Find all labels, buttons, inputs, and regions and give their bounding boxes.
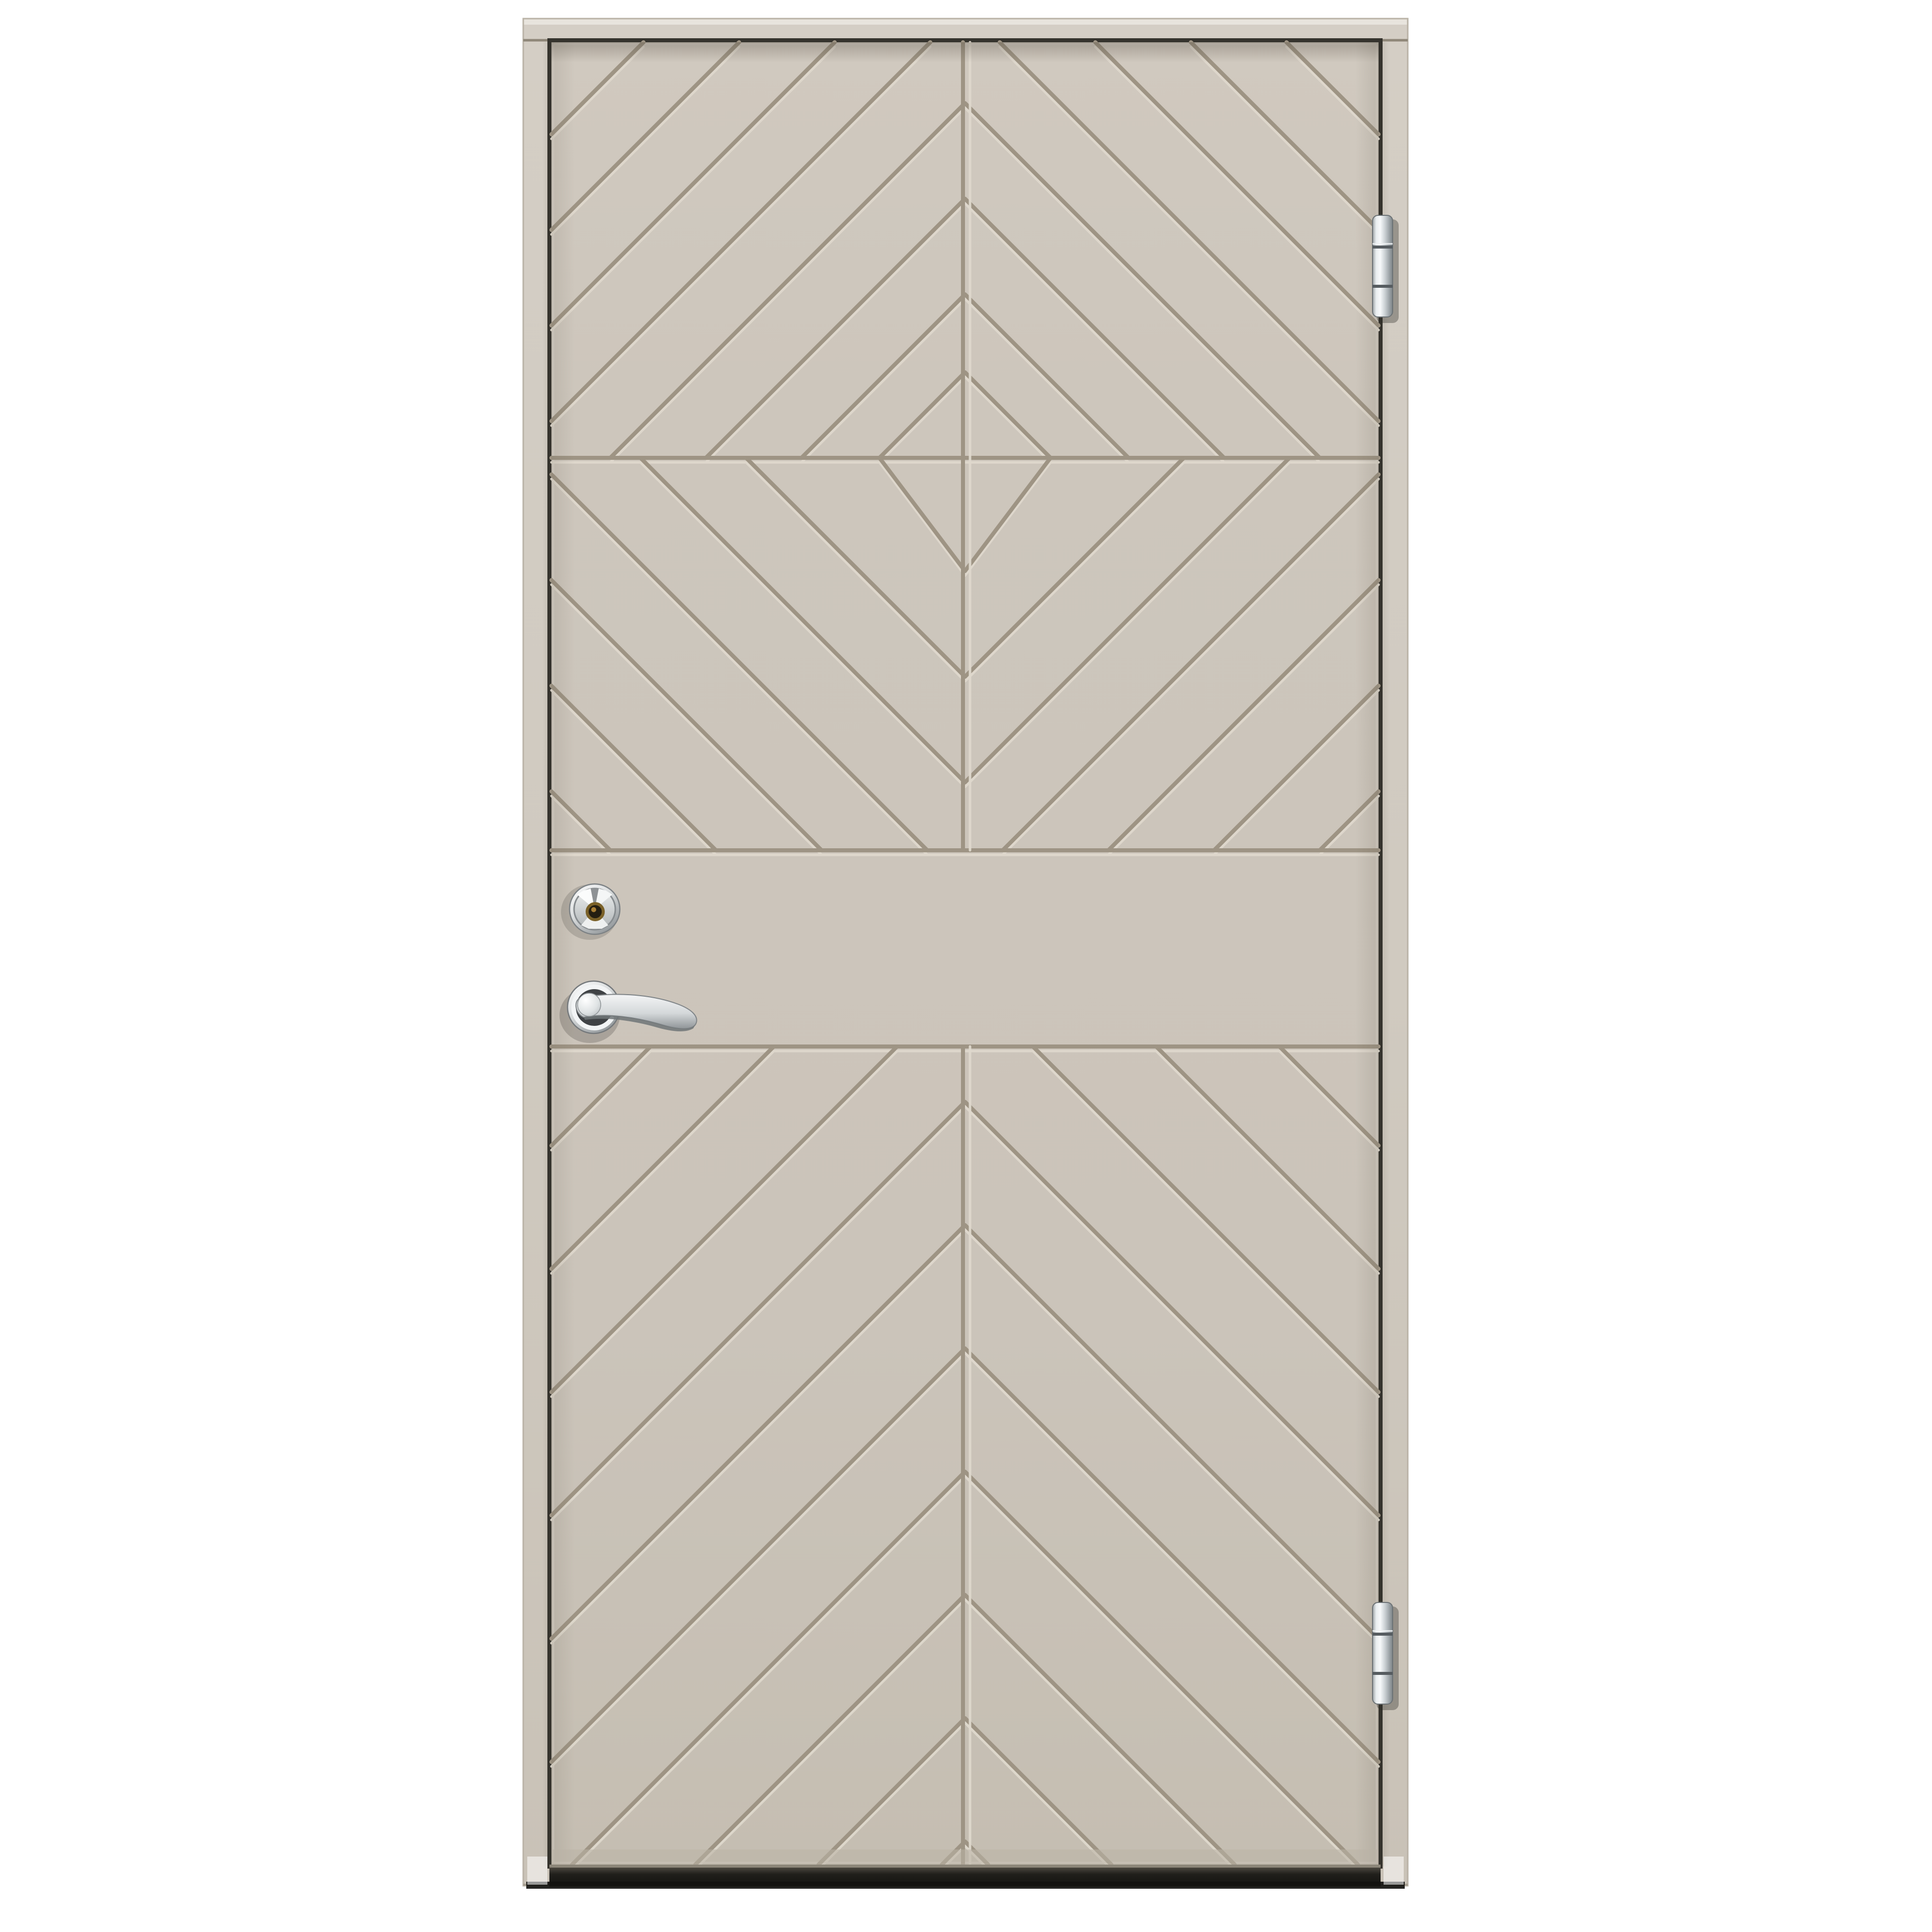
lock-keyway-glint — [591, 907, 596, 912]
bottom-hinge-separator-glint — [1373, 1630, 1393, 1632]
door-photo — [0, 0, 1932, 1932]
top-hinge-separator-glint — [1373, 243, 1393, 245]
top-hinge-separator-lower — [1373, 285, 1393, 288]
bottom-hinge-separator-lower — [1373, 1672, 1393, 1675]
threshold-bottom-bar — [526, 1882, 1405, 1889]
threshold-right-highlight — [1384, 1857, 1404, 1885]
leaf-bottom-bevel — [551, 1849, 1379, 1865]
bottom-hinge-barrel — [1373, 1602, 1393, 1704]
top-hinge-barrel — [1373, 215, 1393, 317]
threshold-left-highlight — [527, 1857, 547, 1885]
product-photo-stage — [0, 0, 1932, 1932]
top-hinge-separator-upper — [1373, 246, 1393, 249]
handle-neck — [578, 993, 601, 1016]
frame-top-cap-highlight — [523, 19, 1408, 25]
leaf-top-shadow — [551, 42, 1379, 62]
bottom-hinge-separator-upper — [1373, 1633, 1393, 1636]
leaf-left-shading — [551, 42, 575, 1865]
top-hinge — [1373, 215, 1399, 323]
door-leaf — [549, 40, 1381, 1869]
bottom-hinge — [1373, 1602, 1399, 1710]
